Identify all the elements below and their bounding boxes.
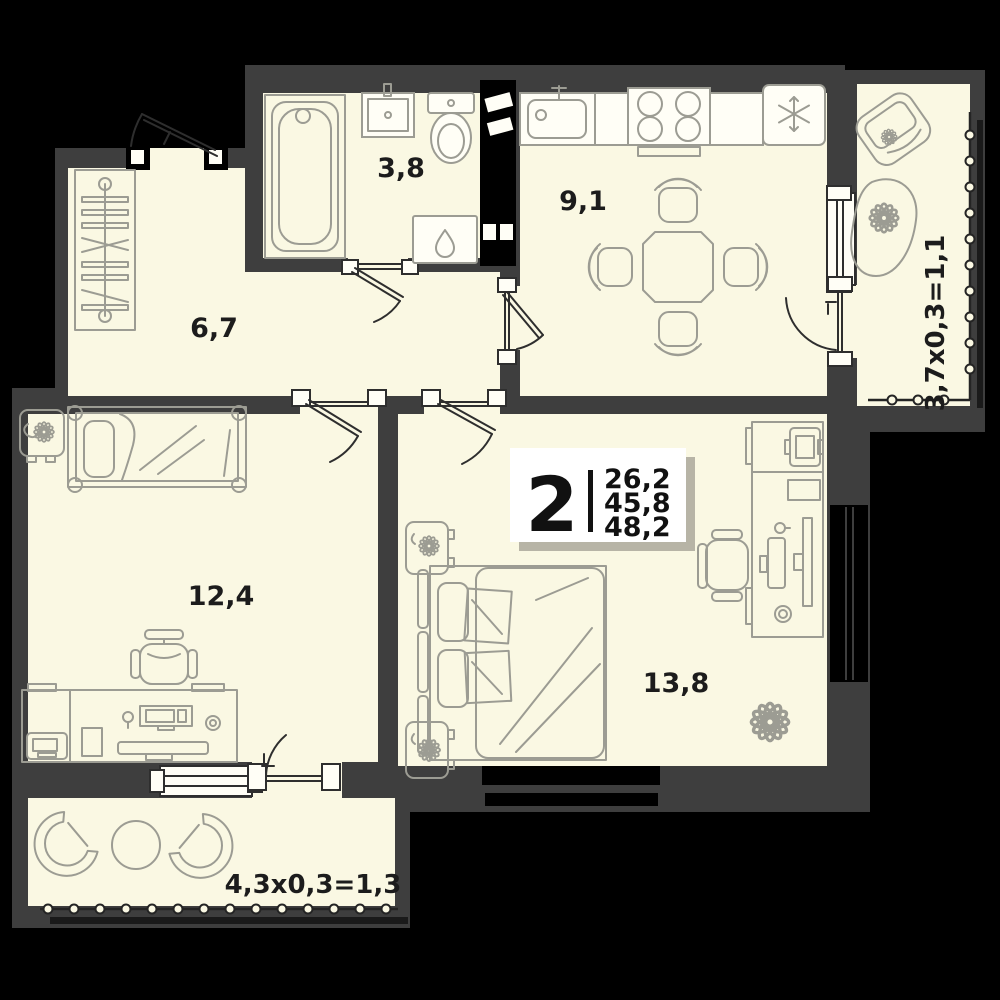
- floor-plan-svg: 3,8: [0, 0, 1000, 1000]
- vent-shaft: [480, 80, 516, 266]
- info-card: 2 26,2 45,8 48,2: [510, 448, 695, 551]
- balcony-right-floor: [857, 84, 970, 406]
- balcony-right-area-label: 3,7x0,3=1,1: [921, 235, 951, 412]
- bedroom-window: [150, 766, 262, 796]
- bedroom-area-label: 12,4: [188, 581, 255, 612]
- stove: [628, 88, 710, 156]
- rooms-count: 2: [526, 460, 579, 549]
- floor-plan-canvas: 3,8: [0, 0, 1000, 1000]
- toilet: [428, 93, 474, 163]
- balcony-bottom-area-label: 4,3x0,3=1,3: [225, 870, 402, 900]
- fridge: [763, 85, 825, 145]
- living-room-side-window: [830, 505, 868, 682]
- living-room-area-label: 13,8: [643, 668, 710, 699]
- kitchen-area-label: 9,1: [559, 186, 607, 217]
- washing-machine: [413, 216, 477, 263]
- hallway-area-label: 6,7: [190, 313, 238, 344]
- area-total: 48,2: [604, 512, 671, 543]
- bathroom-area-label: 3,8: [377, 153, 425, 184]
